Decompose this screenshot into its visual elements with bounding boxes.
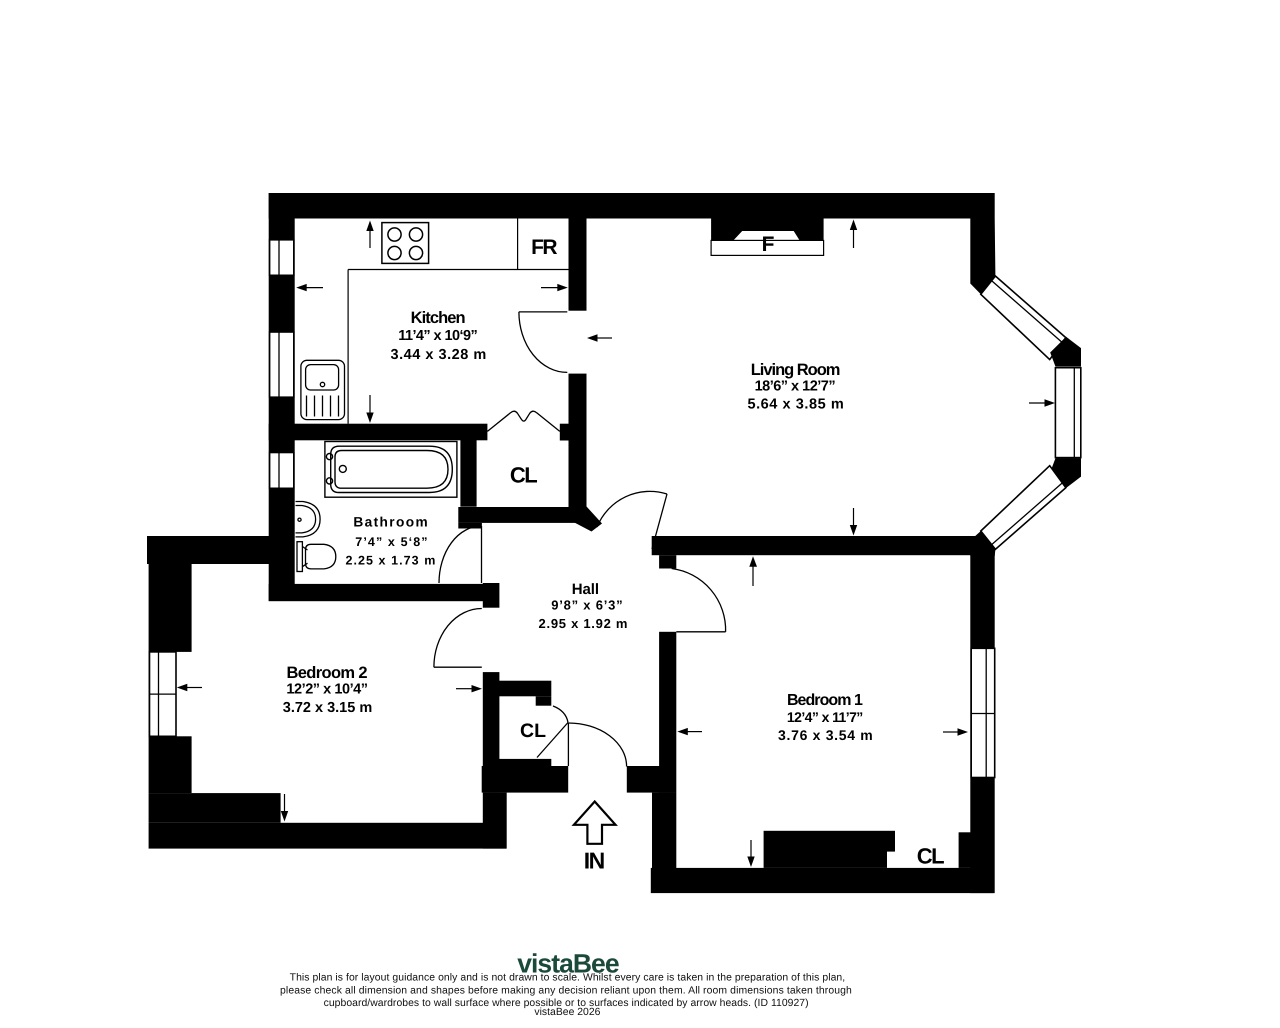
svg-text:This plan is for layout guidan: This plan is for layout guidance only an… — [290, 973, 846, 984]
svg-text:CL: CL — [510, 463, 537, 488]
svg-text:18’6” x 12’7”: 18’6” x 12’7” — [755, 378, 836, 394]
svg-text:Bathroom: Bathroom — [353, 515, 427, 530]
svg-text:5.64 x 3.85 m: 5.64 x 3.85 m — [747, 397, 843, 413]
svg-text:9’8” x 6’3”: 9’8” x 6’3” — [551, 598, 622, 613]
svg-text:3.44 x 3.28 m: 3.44 x 3.28 m — [391, 347, 487, 363]
svg-text:CL: CL — [917, 843, 944, 868]
svg-text:Bedroom 2: Bedroom 2 — [286, 664, 367, 682]
svg-text:FR: FR — [531, 236, 557, 259]
svg-text:CL: CL — [520, 720, 546, 742]
svg-text:7’4” x 5‘8”: 7’4” x 5‘8” — [355, 535, 427, 549]
svg-text:please check all dimension and: please check all dimension and shapes be… — [280, 985, 852, 996]
svg-text:2.95 x 1.92 m: 2.95 x 1.92 m — [539, 616, 628, 631]
svg-text:2.25 x 1.73 m: 2.25 x 1.73 m — [345, 553, 435, 567]
svg-text:12’4” x 11’7”: 12’4” x 11’7” — [787, 709, 863, 725]
svg-text:12’2” x 10’4”: 12’2” x 10’4” — [286, 682, 368, 698]
svg-text:Living Room: Living Room — [751, 361, 841, 379]
svg-text:Kitchen: Kitchen — [411, 309, 466, 327]
svg-text:F: F — [762, 233, 775, 256]
svg-text:Bedroom 1: Bedroom 1 — [787, 692, 863, 709]
svg-text:11’4” x 10‘9”: 11’4” x 10‘9” — [398, 328, 477, 344]
svg-text:vistaBee 2026: vistaBee 2026 — [534, 1007, 600, 1018]
svg-text:3.72 x 3.15 m: 3.72 x 3.15 m — [283, 700, 373, 716]
svg-text:IN: IN — [584, 847, 605, 873]
svg-text:3.76 x 3.54 m: 3.76 x 3.54 m — [778, 727, 873, 743]
svg-text:Hall: Hall — [572, 581, 599, 598]
